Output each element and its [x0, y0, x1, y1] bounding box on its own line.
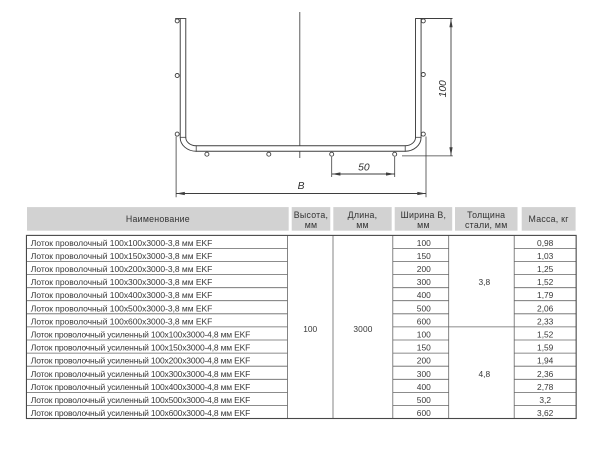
svg-text:Лоток проволочный 100х100х3000: Лоток проволочный 100х100х3000-3,8 мм EK… [31, 238, 213, 248]
svg-text:1,03: 1,03 [537, 251, 554, 261]
svg-text:Наименование: Наименование [126, 214, 190, 224]
svg-text:500: 500 [417, 395, 431, 405]
svg-text:Высота,: Высота, [294, 210, 328, 220]
svg-text:1,94: 1,94 [537, 356, 554, 366]
svg-text:B: B [298, 181, 305, 192]
svg-text:мм: мм [305, 220, 318, 230]
svg-text:200: 200 [417, 264, 431, 274]
svg-text:3,62: 3,62 [537, 408, 554, 418]
svg-text:Длина,: Длина, [348, 210, 378, 220]
svg-text:Лоток проволочный 100х500х3000: Лоток проволочный 100х500х3000-3,8 мм EK… [31, 303, 213, 313]
svg-text:2,06: 2,06 [537, 303, 554, 313]
svg-text:Лоток проволочный усиленный 10: Лоток проволочный усиленный 100х600х3000… [31, 408, 251, 418]
svg-text:3000: 3000 [353, 324, 372, 334]
svg-text:3,8: 3,8 [478, 277, 490, 287]
svg-text:Лоток проволочный усиленный 10: Лоток проволочный усиленный 100х200х3000… [31, 356, 251, 366]
svg-text:Лоток проволочный 100х200х3000: Лоток проволочный 100х200х3000-3,8 мм EK… [31, 264, 213, 274]
svg-text:Лоток проволочный 100х300х3000: Лоток проволочный 100х300х3000-3,8 мм EK… [31, 277, 213, 287]
svg-text:1,79: 1,79 [537, 290, 554, 300]
svg-text:2,36: 2,36 [537, 369, 554, 379]
svg-text:150: 150 [417, 251, 431, 261]
svg-text:300: 300 [417, 369, 431, 379]
svg-text:600: 600 [417, 316, 431, 326]
svg-text:мм: мм [417, 220, 430, 230]
svg-text:300: 300 [417, 277, 431, 287]
svg-text:100: 100 [417, 330, 431, 340]
svg-text:Лоток проволочный 100х600х3000: Лоток проволочный 100х600х3000-3,8 мм EK… [31, 316, 213, 326]
svg-text:Толщина: Толщина [467, 210, 505, 220]
svg-text:3,2: 3,2 [539, 395, 551, 405]
svg-text:Лоток проволочный усиленный 10: Лоток проволочный усиленный 100х300х3000… [31, 369, 251, 379]
svg-text:150: 150 [417, 343, 431, 353]
svg-text:100: 100 [438, 80, 449, 97]
svg-text:стали, мм: стали, мм [465, 220, 508, 230]
svg-text:Ширина В,: Ширина В, [401, 210, 447, 220]
svg-text:Лоток проволочный усиленный 10: Лоток проволочный усиленный 100х150х3000… [31, 343, 251, 353]
svg-text:100: 100 [303, 324, 317, 334]
svg-text:2,78: 2,78 [537, 382, 554, 392]
svg-text:400: 400 [417, 382, 431, 392]
svg-text:Лоток проволочный 100х150х3000: Лоток проволочный 100х150х3000-3,8 мм EK… [31, 251, 213, 261]
svg-text:1,52: 1,52 [537, 277, 554, 287]
svg-text:100: 100 [417, 238, 431, 248]
svg-text:0,98: 0,98 [537, 238, 554, 248]
svg-text:Лоток проволочный усиленный 10: Лоток проволочный усиленный 100х400х3000… [31, 382, 251, 392]
svg-text:1,59: 1,59 [537, 343, 554, 353]
svg-text:Лоток проволочный 100х400х3000: Лоток проволочный 100х400х3000-3,8 мм EK… [31, 290, 213, 300]
svg-text:600: 600 [417, 408, 431, 418]
svg-text:400: 400 [417, 290, 431, 300]
svg-text:Лоток проволочный усиленный 10: Лоток проволочный усиленный 100х100х3000… [31, 330, 251, 340]
svg-text:1,52: 1,52 [537, 330, 554, 340]
svg-text:1,25: 1,25 [537, 264, 554, 274]
svg-text:500: 500 [417, 303, 431, 313]
svg-text:Лоток проволочный усиленный 10: Лоток проволочный усиленный 100х500х3000… [31, 395, 251, 405]
svg-text:2,33: 2,33 [537, 316, 554, 326]
svg-text:200: 200 [417, 356, 431, 366]
svg-text:4,8: 4,8 [478, 369, 490, 379]
svg-text:50: 50 [358, 162, 370, 173]
svg-text:Масса, кг: Масса, кг [529, 214, 569, 224]
svg-text:мм: мм [356, 220, 369, 230]
